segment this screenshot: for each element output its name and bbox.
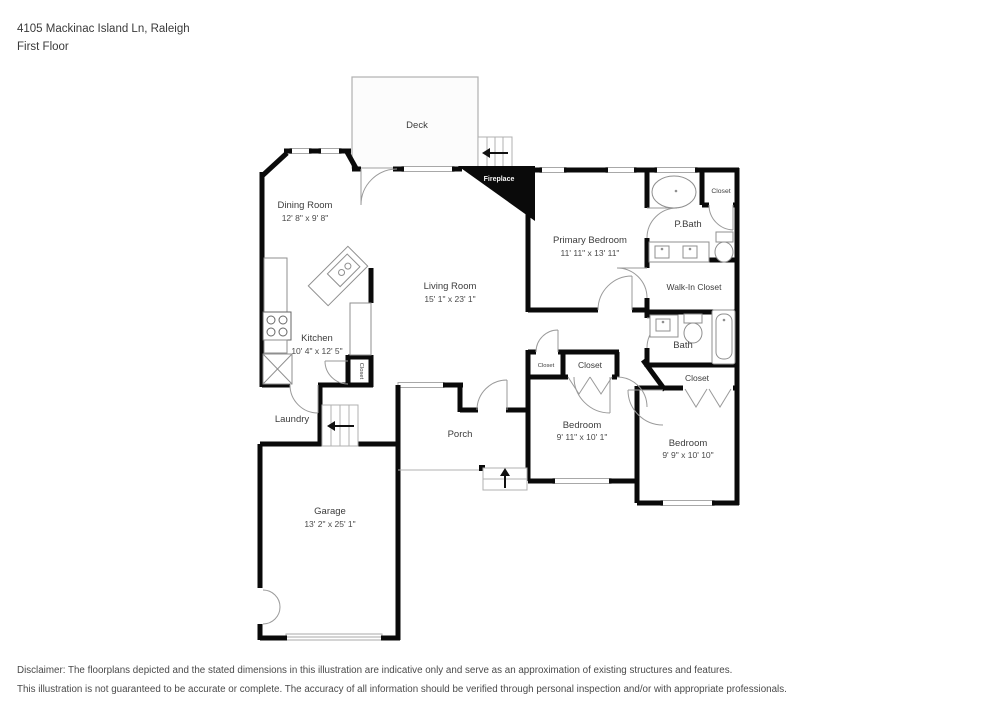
label-hall-closet: Closet [685, 373, 710, 383]
porch-steps [398, 465, 527, 490]
address-title: 4105 Mackinac Island Ln, Raleigh [17, 20, 190, 38]
label-primary-bedroom: Primary Bedroom [553, 235, 627, 246]
label-pbath-closet: Closet [711, 188, 730, 195]
label-garage: Garage [314, 506, 346, 517]
label-pbath: P.Bath [674, 219, 701, 230]
label-dining-room: Dining Room [278, 200, 333, 211]
pbath-toilet-icon [715, 232, 733, 262]
stove-icon [263, 312, 291, 340]
kitchen-fixtures [263, 246, 371, 384]
label-porch: Porch [448, 429, 473, 440]
island-sink-icon [308, 246, 367, 305]
label-bedroom1: Bedroom [563, 420, 602, 431]
refrigerator-icon [263, 354, 292, 384]
disclaimer: Disclaimer: The floorplans depicted and … [17, 662, 787, 699]
label-closet-big: Closet [578, 360, 603, 370]
double-vanity-icon [649, 242, 709, 262]
label-laundry: Laundry [275, 414, 310, 425]
walls [260, 151, 739, 640]
label-bath: Bath [673, 340, 693, 351]
label-closet-small: Closet [538, 363, 555, 369]
fireplace-label: Fireplace [484, 176, 515, 183]
disclaimer-line1: Disclaimer: The floorplans depicted and … [17, 662, 787, 681]
dims-dining-room: 12' 8" x 9' 8" [282, 213, 329, 223]
disclaimer-line2: This illustration is not guaranteed to b… [17, 681, 787, 700]
fireplace: Fireplace [458, 166, 535, 221]
dims-garage: 13' 2" x 25' 1" [304, 519, 355, 529]
plan-header: 4105 Mackinac Island Ln, Raleigh First F… [17, 20, 190, 56]
bath-fixtures [650, 310, 735, 364]
bath-sink-icon [650, 315, 678, 337]
dims-primary-bedroom: 11' 11" x 13' 11" [561, 248, 620, 258]
label-kitchen-closet: Closet [358, 363, 364, 380]
bathtub-icon [712, 310, 735, 364]
label-kitchen: Kitchen [301, 333, 333, 344]
floorplan-page: 4105 Mackinac Island Ln, Raleigh First F… [0, 0, 1000, 707]
bath-toilet-icon [684, 314, 702, 343]
label-deck: Deck [406, 120, 428, 131]
interior-stairs [322, 405, 358, 446]
windows [286, 149, 714, 641]
dims-kitchen: 10' 4" x 12' 5" [291, 346, 342, 356]
floorplan-drawing: Fireplace [0, 0, 1000, 707]
label-living-room: Living Room [424, 281, 477, 292]
deck-outline [352, 77, 512, 168]
dims-living-room: 15' 1" x 23' 1" [424, 294, 475, 304]
door-swings [263, 169, 733, 624]
dims-bedroom2: 9' 9" x 10' 10" [662, 450, 713, 460]
floor-subtitle: First Floor [17, 38, 190, 56]
garden-tub-icon [652, 176, 696, 208]
dims-bedroom1: 9' 11" x 10' 1" [557, 432, 608, 442]
label-walkin-closet: Walk-In Closet [667, 282, 723, 292]
label-bedroom2: Bedroom [669, 438, 708, 449]
